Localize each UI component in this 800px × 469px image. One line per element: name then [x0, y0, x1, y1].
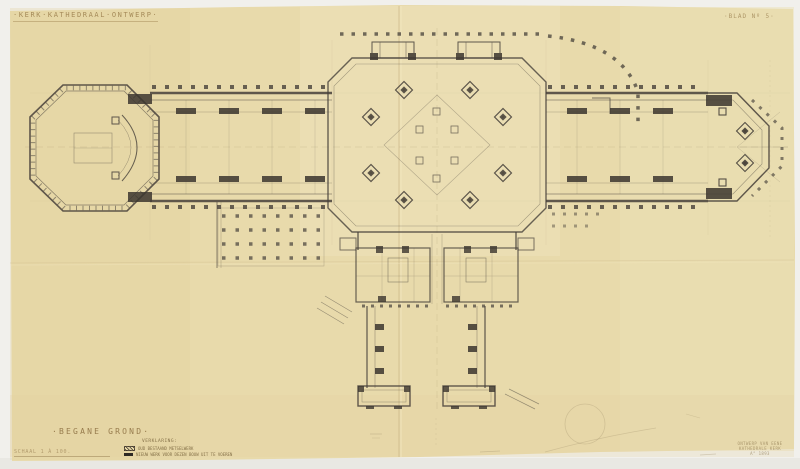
- scanned-drawing-sheet: ·KERK·KATHEDRAAL·ONTWERP· ·BLAD Nº 5· ·B…: [0, 0, 800, 469]
- legend-swatch-hatched-icon: [124, 446, 135, 451]
- signature-block: ONTWERP VAN EENE KATHEDRALE KERK A° 1893: [724, 441, 796, 456]
- legend-item-label: OUD BESTAAND METSELWERK: [138, 446, 193, 451]
- floor-plan-artwork: [0, 0, 800, 469]
- signature-line: A° 1893: [724, 451, 796, 456]
- legend-heading: VERKLARING:: [142, 439, 232, 444]
- drawing-paper: [10, 5, 795, 461]
- sheet-number-label: ·BLAD Nº 5·: [724, 13, 775, 20]
- legend-item: OUD BESTAAND METSELWERK: [124, 446, 232, 451]
- legend-swatch-solid-icon: [124, 453, 133, 456]
- drawing-title: ·KERK·KATHEDRAAL·ONTWERP·: [13, 11, 158, 22]
- scale-label: SCHAAL 1 À 100.: [14, 449, 110, 457]
- legend-item: NIEUW WERK VOOR DEZEN BOUW UIT TE VOEREN: [124, 452, 232, 457]
- legend: VERKLARING: OUD BESTAAND METSELWERK NIEU…: [124, 439, 232, 457]
- legend-item-label: NIEUW WERK VOOR DEZEN BOUW UIT TE VOEREN: [136, 452, 232, 457]
- floor-label: ·BEGANE GROND·: [52, 427, 150, 436]
